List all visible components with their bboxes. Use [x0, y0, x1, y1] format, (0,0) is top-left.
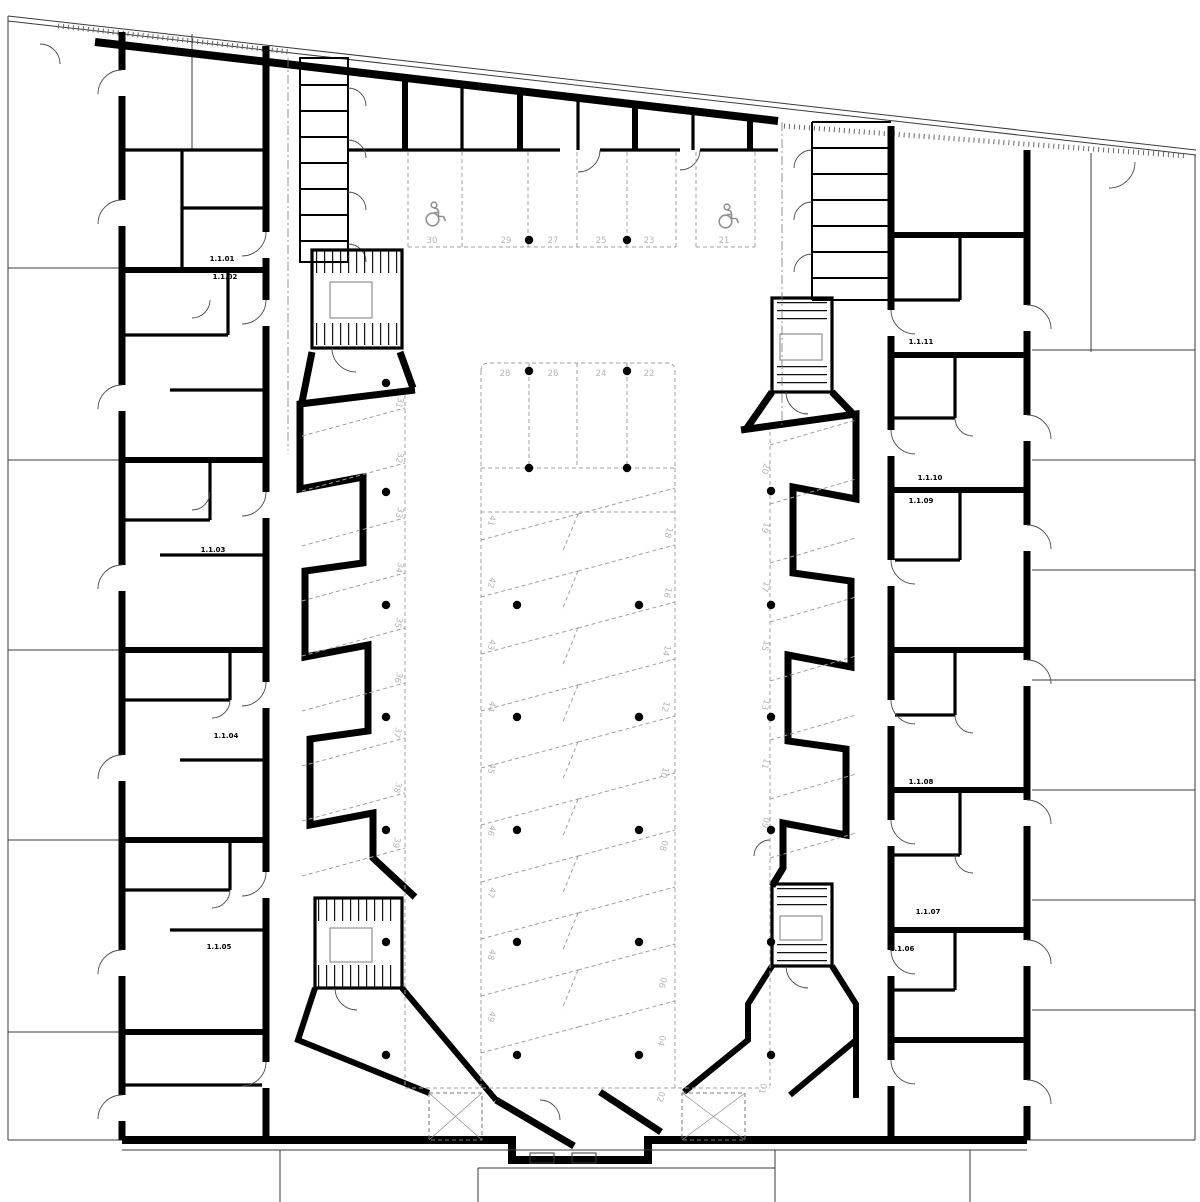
stair-core-northwest: [312, 250, 402, 348]
parking-space-number: 47: [485, 886, 497, 899]
parking-space-number: 18: [662, 526, 674, 539]
parking-space-number: 08: [657, 839, 669, 852]
parking-space-number: 39: [390, 836, 402, 849]
parking-space-number: 44: [485, 700, 497, 713]
parking-space-number: 12: [659, 700, 671, 713]
parking-space-number: 24: [596, 369, 607, 379]
parking-space-number: 37: [391, 726, 403, 739]
parking-space-number: 32: [393, 451, 405, 464]
parking-space-number: 17: [759, 580, 771, 593]
parking-space-number: 21: [719, 236, 730, 246]
parking-space-number: 23: [644, 236, 655, 246]
parking-space-number: 48: [485, 948, 497, 961]
parking-space-number: 43: [485, 638, 497, 651]
stair-core-southeast: [772, 884, 832, 966]
garage-entrance: [496, 1092, 661, 1163]
unit-label: 1.1.09: [909, 497, 934, 505]
exterior-walls: [95, 32, 1027, 1160]
parking-space-number: 14: [660, 644, 672, 657]
unit-label: 1.1.05: [207, 943, 232, 951]
parking-space-number: 49: [485, 1010, 497, 1023]
parking-space-number: 38: [391, 781, 403, 794]
parking-space-number: 09: [759, 816, 771, 829]
unit-label: 1.1.10: [918, 474, 943, 482]
unit-label: 1.1.11: [909, 338, 934, 346]
parking-space-number: 31: [393, 396, 405, 409]
parking-space-number: 11: [759, 757, 771, 770]
parking-space-number: 45: [485, 762, 497, 775]
parking-space-number: 19: [759, 521, 771, 534]
shaft-x-box-left: [429, 1093, 482, 1140]
parking-space-number: 35: [392, 616, 404, 629]
stair-core-northeast: [772, 298, 832, 392]
parking-space-number: 27: [548, 236, 559, 246]
parking-space-number: 16: [661, 586, 673, 599]
accessible-parking-icon: [719, 204, 738, 228]
unit-label: 1.1.04: [214, 732, 239, 740]
accessible-parking-icon: [426, 202, 445, 226]
parking-space-number: 25: [596, 236, 607, 246]
interior-partition-walls: [122, 86, 960, 1085]
balconies-right: [1027, 153, 1195, 1140]
parking-space-number: 30: [427, 236, 438, 246]
parking-space-number: 41: [485, 514, 497, 527]
parking-space-number: 20: [759, 462, 771, 475]
parking-space-number: 04: [655, 1034, 667, 1047]
parking-space-number: 29: [501, 236, 512, 246]
parking-space-number: 15: [759, 639, 771, 652]
parking-space-numbers: 30 29 27 25 23 21 28 26 24 22 31 32 33 3…: [390, 236, 771, 1103]
unit-label: 1.1.02: [213, 273, 238, 281]
site-boundary: [8, 16, 1196, 156]
parking-space-number: 46: [485, 824, 497, 837]
unit-label: 1.1.01: [210, 255, 235, 263]
parking-space-number: 42: [485, 576, 497, 589]
unit-label: 1.1.03: [201, 546, 226, 554]
storage-cells-right: [794, 122, 891, 300]
unit-label: 1.1.06: [890, 945, 915, 953]
unit-label: 1.1.08: [909, 778, 934, 786]
unit-label: 1.1.07: [916, 908, 941, 916]
parking-space-number: 36: [392, 671, 404, 684]
parking-space-number: 13: [759, 698, 771, 711]
parking-space-number: 22: [644, 369, 655, 379]
floor-plan: 30 29 27 25 23 21 28 26 24 22 31 32 33 3…: [0, 0, 1200, 1202]
parking-space-number: 28: [500, 369, 511, 379]
parking-space-number: 34: [393, 561, 405, 574]
parking-space-number: 26: [548, 369, 559, 379]
shaft-x-box-right: [682, 1093, 745, 1140]
parking-space-number: 06: [656, 976, 668, 989]
parking-space-number: 01: [756, 1082, 768, 1095]
parking-space-number: 33: [393, 506, 405, 519]
structural-columns: [382, 236, 775, 1059]
parking-space-number: 02: [654, 1090, 666, 1103]
storage-cells-left: [300, 58, 366, 262]
door-swings: [98, 70, 1051, 1120]
